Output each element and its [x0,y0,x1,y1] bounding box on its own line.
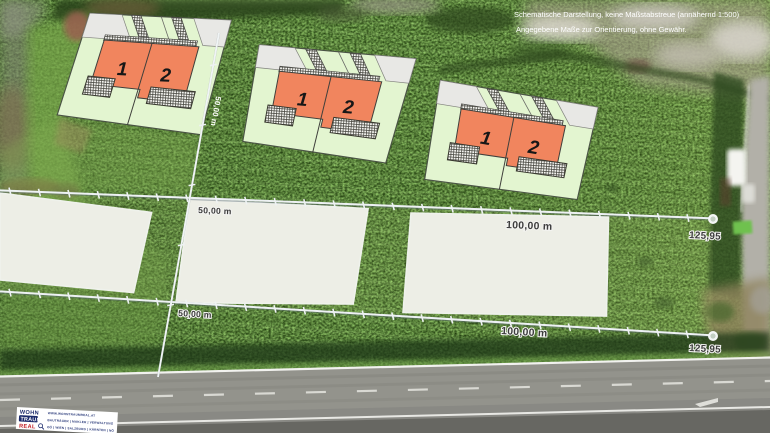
svg-text:2: 2 [159,65,172,87]
svg-text:50,00 m: 50,00 m [198,205,232,216]
svg-text:125,95: 125,95 [689,343,722,356]
svg-text:REAL: REAL [19,424,36,431]
svg-text:Angegebene Maße zur Orientieru: Angegebene Maße zur Orientierung, ohne G… [516,25,687,34]
svg-text:TRAUM: TRAUM [20,416,41,423]
svg-text:100,00 m: 100,00 m [506,220,553,233]
svg-text:2: 2 [341,97,355,119]
svg-text:1: 1 [296,89,308,111]
svg-text:Schematische Darstellung, kein: Schematische Darstellung, keine Maßstabs… [514,10,740,19]
svg-text:50,00 m: 50,00 m [178,308,212,320]
svg-text:1: 1 [116,59,128,80]
svg-text:125,95: 125,95 [689,230,722,243]
